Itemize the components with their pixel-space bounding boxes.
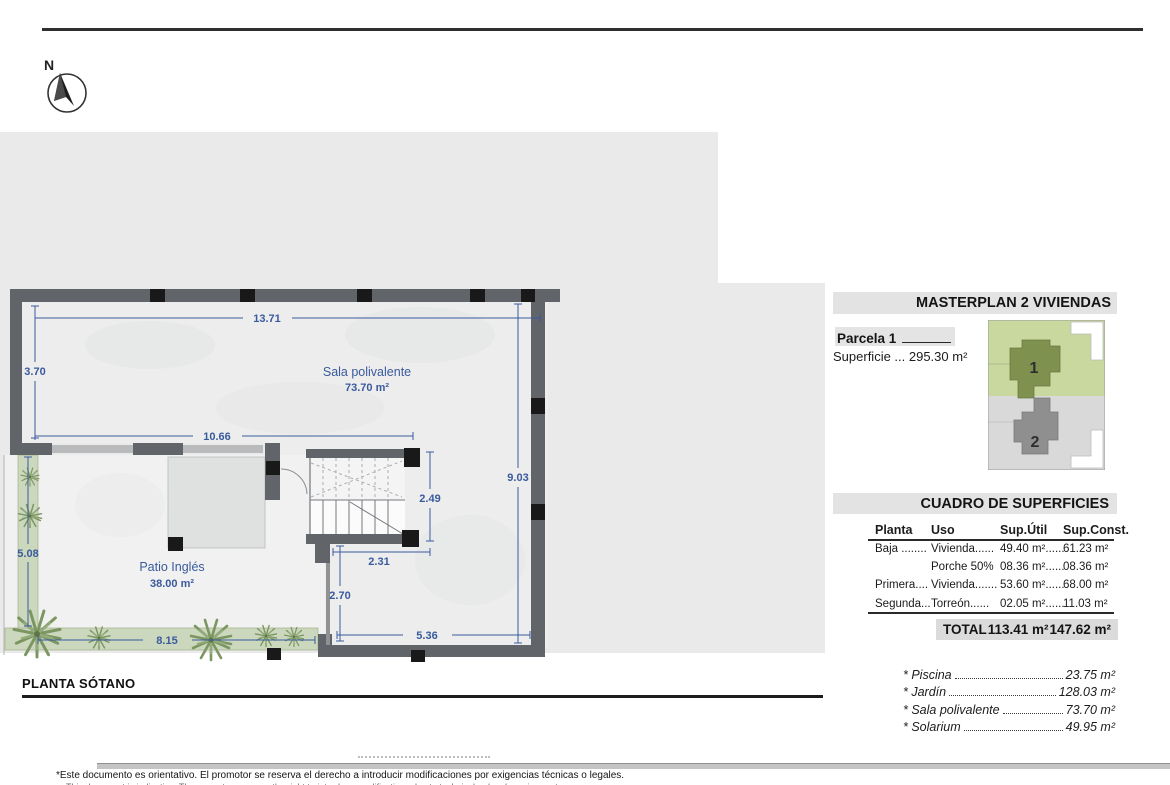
cell-uso: Porche 50% <box>931 561 1000 573</box>
table-rule-bottom <box>868 612 1114 614</box>
parcel-surface: Superficie ... 295.30 m² <box>833 349 967 364</box>
table-row: Primera.... Vivienda....... 53.60 m²....… <box>875 576 1121 594</box>
extra-name: * Sala polivalente <box>903 703 1000 717</box>
extra-name: * Jardín <box>903 685 946 699</box>
col-planta: Planta <box>875 523 931 537</box>
site-key-map: 1 2 <box>988 320 1105 470</box>
extra-name: * Piscina <box>903 668 952 682</box>
list-item: * Piscina 23.75 m² <box>903 664 1115 682</box>
col-sup-const: Sup.Const. <box>1063 523 1121 537</box>
cell-uso: Vivienda...... <box>931 543 1000 555</box>
dim-stair: 2.49 <box>419 493 440 505</box>
projection-overlay <box>168 457 265 548</box>
room-sala-name: Sala polivalente <box>323 365 411 379</box>
parcel-label-bar: Parcela 1 <box>835 327 955 346</box>
table-row: Baja ........ Vivienda...... 49.40 m²...… <box>875 540 1121 558</box>
plan-title: PLANTA SÓTANO <box>22 676 135 691</box>
map-plot1-label: 1 <box>1030 360 1039 377</box>
dim-below-stair: 2.31 <box>368 556 389 568</box>
cell-planta: Baja ........ <box>875 543 931 555</box>
dotted-leader <box>1003 713 1063 714</box>
dim-bottom-left: 8.15 <box>156 635 177 647</box>
surfaces-title: CUADRO DE SUPERFICIES <box>920 496 1109 512</box>
map-plot2-label: 2 <box>1031 434 1040 451</box>
cell-util: 49.40 m²...... <box>1000 543 1063 555</box>
cell-uso: Vivienda....... <box>931 579 1000 591</box>
drawing-background-upper <box>0 132 718 283</box>
col-uso: Uso <box>931 523 1000 537</box>
dim-right: 9.03 <box>507 472 528 484</box>
disclaimer-es: *Este documento es orientativo. El promo… <box>56 770 676 781</box>
dim-bottom-right: 5.36 <box>416 630 437 642</box>
parcel-blank-line <box>902 342 951 343</box>
col-sup-util: Sup.Útil <box>1000 523 1063 537</box>
table-row: Segunda... Torreón...... 02.05 m²...... … <box>875 595 1121 613</box>
dotted-leader <box>955 678 1063 679</box>
extra-value: 128.03 m² <box>1059 685 1115 699</box>
top-rule <box>42 28 1143 31</box>
parcel-label: Parcela 1 <box>837 331 896 346</box>
cell-const: 68.00 m² <box>1063 579 1121 591</box>
cell-util: 02.05 m²...... <box>1000 598 1063 610</box>
faint-clipped-text <box>358 756 490 761</box>
dotted-leader <box>949 695 1056 696</box>
room-patio-name: Patio Inglés <box>139 560 204 574</box>
table-row: Porche 50% 08.36 m²...... 08.36 m² <box>875 558 1121 576</box>
surfaces-table-header: Planta Uso Sup.Útil Sup.Const. <box>875 521 1121 539</box>
masterplan-title-bar: MASTERPLAN 2 VIVIENDAS <box>833 292 1117 314</box>
extra-value: 49.95 m² <box>1066 720 1115 734</box>
cell-util: 08.36 m²...... <box>1000 561 1063 573</box>
architectural-plan-sheet: N <box>0 0 1170 785</box>
dotted-leader <box>964 730 1063 731</box>
room-patio-area: 38.00 m² <box>150 578 194 590</box>
extra-areas-list: * Piscina 23.75 m² * Jardín 128.03 m² * … <box>903 664 1115 734</box>
dim-top: 13.71 <box>253 313 281 325</box>
cell-const: 61.23 m² <box>1063 543 1121 555</box>
surfaces-title-bar: CUADRO DE SUPERFICIES <box>833 493 1117 514</box>
dim-mid-lower: 2.70 <box>329 590 350 602</box>
cell-planta: Primera.... <box>875 579 931 591</box>
total-bar: TOTAL 113.41 m² 147.62 m² <box>936 619 1118 640</box>
extra-name: * Solarium <box>903 720 961 734</box>
dim-left-lower: 5.08 <box>17 548 38 560</box>
dim-left-upper: 3.70 <box>24 366 45 378</box>
total-util: 113.41 m² <box>988 622 1049 637</box>
cell-const: 08.36 m² <box>1063 561 1121 573</box>
list-item: * Jardín 128.03 m² <box>903 682 1115 700</box>
north-compass-icon <box>40 66 96 122</box>
list-item: * Solarium 49.95 m² <box>903 717 1115 735</box>
plan-title-rule <box>22 695 823 698</box>
masterplan-title: MASTERPLAN 2 VIVIENDAS <box>916 295 1111 311</box>
list-item: * Sala polivalente 73.70 m² <box>903 699 1115 717</box>
footer-divider-bar <box>97 763 1170 769</box>
floor-plan: 13.71 3.70 10.66 9.03 2.49 5.08 2.31 2.7… <box>0 280 580 672</box>
staircase <box>310 458 405 536</box>
cell-planta: Segunda... <box>875 598 931 610</box>
cell-util: 53.60 m²...... <box>1000 579 1063 591</box>
cell-uso: Torreón...... <box>931 598 1000 610</box>
dim-mid: 10.66 <box>203 431 231 443</box>
total-const: 147.62 m² <box>1049 622 1111 637</box>
extra-value: 23.75 m² <box>1066 668 1115 682</box>
room-sala-area: 73.70 m² <box>345 382 389 394</box>
extra-value: 73.70 m² <box>1066 703 1115 717</box>
cell-const: 11.03 m² <box>1063 598 1121 610</box>
total-label: TOTAL <box>943 622 987 637</box>
surfaces-table-body: Baja ........ Vivienda...... 49.40 m²...… <box>875 540 1121 613</box>
